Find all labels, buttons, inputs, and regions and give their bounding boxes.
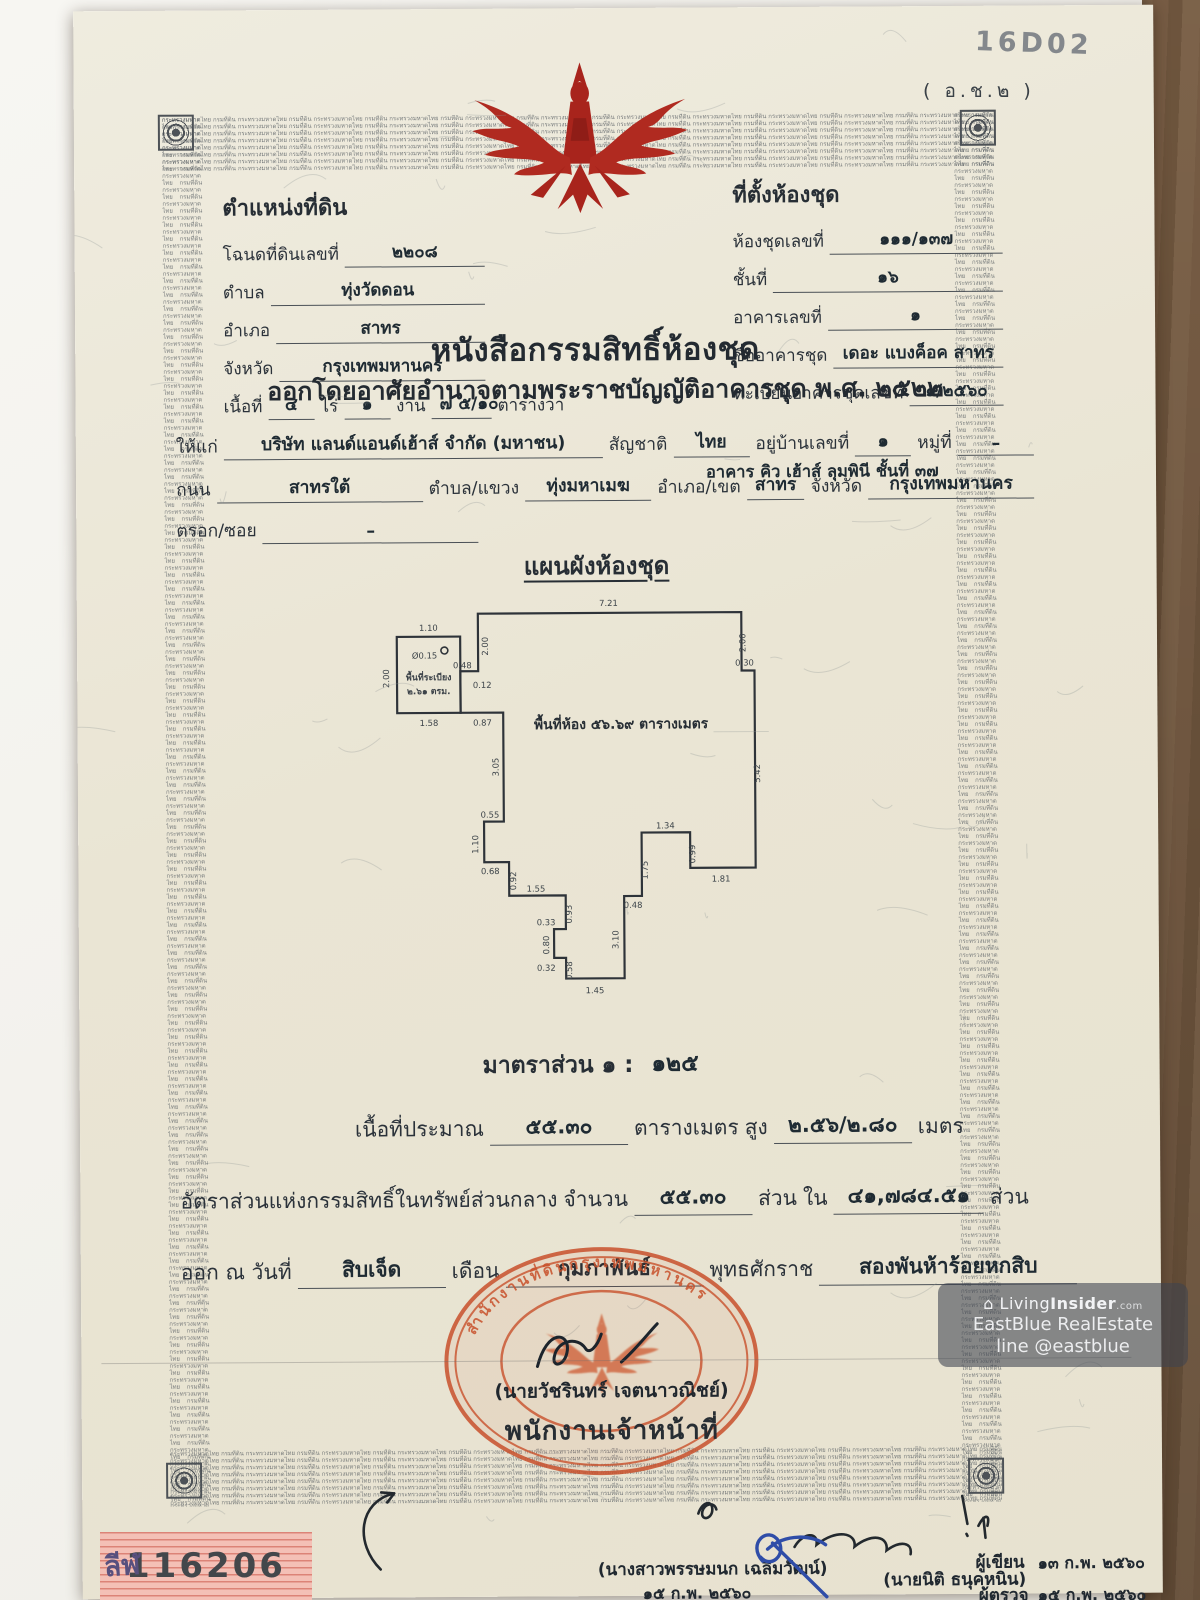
livinginsider-logo-icon: ⌂ xyxy=(983,1294,994,1313)
dimension-label: 1.75 xyxy=(640,861,650,880)
dimension-label: 5.42 xyxy=(752,764,762,783)
field-value: บริษัท แลนด์แอนด์เฮ้าส์ จำกัด (มหาชน) xyxy=(224,428,603,460)
field-label: ส่วน xyxy=(990,1180,1029,1213)
officer-name: (นายวัชรินทร์ เจตนาวณิชย์) xyxy=(412,1375,812,1407)
dimension-label: 0.48 xyxy=(453,660,472,670)
handwritten-initial: ลีฬ xyxy=(103,1543,142,1589)
dimension-label: 0.32 xyxy=(537,963,556,973)
scale-label: มาตราส่วน ๑ : xyxy=(483,1047,634,1084)
floor-plan-title: แผนผังห้องชุด xyxy=(76,543,1116,588)
field-value: ๑๖ xyxy=(773,263,1003,293)
officer-signature xyxy=(529,1319,709,1378)
dimension-label: 2.00 xyxy=(381,669,391,688)
field-value: ไทย xyxy=(673,427,749,457)
field-value: ทุ่งวัดดอน xyxy=(271,276,485,306)
corner-rosette-icon xyxy=(960,110,996,146)
dimension-label: Ø0.15 xyxy=(412,650,437,660)
watermark-brand: ⌂ LivingInsider.com xyxy=(983,1294,1142,1313)
handwritten-code: 16D02 xyxy=(974,26,1093,61)
field-value: ๒๒๐๘ xyxy=(345,238,485,268)
dimension-label: 0.48 xyxy=(624,900,643,910)
form-row: อัตราส่วนแห่งกรรมสิทธิ์ในทรัพย์ส่วนกลางจ… xyxy=(180,1178,1060,1218)
field-label: หมู่ที่ xyxy=(917,428,952,456)
form-code: ( อ.ช.๒ ) xyxy=(923,76,1035,106)
field-label: ส่วน xyxy=(758,1182,797,1215)
deed-title: หนังสือกรรมสิทธิ์ห้องชุด xyxy=(375,323,815,376)
field-value: เดอะ แบงค็อค สาทร xyxy=(833,339,1003,369)
registration-number: 116206 xyxy=(126,1546,286,1586)
dimension-label: 0.55 xyxy=(481,810,500,820)
dimension-label: 1.55 xyxy=(527,884,546,894)
field-value: ทุ่งมหาเมฆ xyxy=(525,471,651,502)
dimension-label: 0.58 xyxy=(564,961,574,980)
field-value: ๔๑,๗๘๔.๕๑ xyxy=(833,1179,984,1215)
field-label: สัญชาติ xyxy=(609,430,668,458)
dimension-label: 1.34 xyxy=(656,820,675,830)
form-row: ตำบลทุ่งวัดดอน xyxy=(223,276,485,307)
corner-rosette-icon xyxy=(158,115,194,151)
balcony-area: ๒.๖๑ ตรม. xyxy=(407,687,451,697)
field-label: จำนวน xyxy=(563,1183,628,1216)
form-row: ให้แก่บริษัท แลนด์แอนด์เฮ้าส์ จำกัด (มหา… xyxy=(176,425,1034,460)
field-value: – xyxy=(263,521,479,544)
dimension-label: 0.93 xyxy=(564,905,574,924)
form-row: ตรอก/ซอย– xyxy=(176,511,1034,544)
field-label: ใน xyxy=(803,1182,828,1215)
field-label: โฉนดที่ดินเลขที่ xyxy=(223,241,339,269)
field-label: เนื้อที่ประมาณ xyxy=(355,1113,484,1147)
field-value: สองพันห้าร้อยหกสิบ xyxy=(819,1249,1077,1286)
field-value: สาทรใต้ xyxy=(217,472,423,503)
dimension-label: 3.05 xyxy=(491,758,501,777)
field-label: ให้แก่ xyxy=(176,432,218,460)
handwritten-marks xyxy=(262,1467,1083,1600)
field-label: ตารางเมตร xyxy=(634,1111,739,1145)
dimension-label: 1.58 xyxy=(420,718,439,728)
dimension-label: 1.10 xyxy=(470,835,480,854)
dimension-label: 3.10 xyxy=(610,930,620,949)
field-value: ๕๕.๓๐ xyxy=(490,1110,628,1146)
field-label: ตรอก/ซอย xyxy=(176,516,257,544)
dimension-label: 7.21 xyxy=(599,598,618,608)
field-value: ๑ xyxy=(855,426,911,456)
form-row: ชั้นที่๑๖ xyxy=(733,263,1003,294)
dimension-label: 2.00 xyxy=(480,637,490,656)
grantee-address-line2: อาคาร คิว เฮ้าส์ ลุมพินี ชั้นที่ ๓๗ xyxy=(706,458,939,485)
dimension-label: 1.81 xyxy=(712,874,731,884)
form-row: โฉนดที่ดินเลขที่๒๒๐๘ xyxy=(223,238,485,269)
scale-value: ๑๒๕ xyxy=(643,1045,706,1082)
field-label: ถนน xyxy=(176,475,211,503)
field-value: ๒.๕๖/๒.๘๐ xyxy=(774,1108,912,1144)
field-label: ตำบล xyxy=(223,279,265,306)
dimension-label: 0.68 xyxy=(481,866,500,876)
room-area-label: พื้นที่ห้อง ๕๖.๖๙ ตารางเมตร xyxy=(534,713,709,733)
field-label: ตำบล/แขวง xyxy=(429,474,520,503)
deed-subtitle: ออกโดยอาศัยอำนาจตามพระราชบัญญัติอาคารชุด… xyxy=(185,368,1025,413)
dimension-label: 1.10 xyxy=(419,623,438,633)
brand-prefix: Living xyxy=(1000,1294,1051,1313)
column-circle xyxy=(441,647,448,654)
watermark-line2: EastBlue RealEstate xyxy=(973,1314,1153,1335)
land-position-title: ตำแหน่งที่ดิน xyxy=(222,189,484,226)
officer-role: พนักงานเจ้าหน้าที่ xyxy=(412,1409,812,1452)
brand-tld: .com xyxy=(1116,1301,1143,1312)
dimension-label: 0.87 xyxy=(473,718,492,728)
dimension-label: 0.80 xyxy=(541,936,551,955)
field-label: ชั้นที่ xyxy=(733,266,768,293)
dimension-label: 0.33 xyxy=(537,917,556,927)
field-label: ออก ณ วันที่ xyxy=(181,1256,292,1290)
form-row: ห้องชุดเลขที่๑๑๑/๑๓๗ xyxy=(732,225,1002,256)
dimension-label: 0.92 xyxy=(508,871,518,890)
field-value: สิบเจ็ด xyxy=(298,1253,446,1289)
floor-plan-drawing: พื้นที่ระเบียง ๒.๖๑ ตรม. พื้นที่ห้อง ๕๖.… xyxy=(373,589,786,1011)
field-value: ๕๕.๓๐ xyxy=(634,1180,752,1216)
dimension-label: 2.00 xyxy=(737,633,747,652)
field-label: อำเภอ xyxy=(223,317,270,344)
field-label: อัตราส่วนแห่งกรรมสิทธิ์ในทรัพย์ส่วนกลาง xyxy=(180,1183,557,1218)
field-value: ๑ xyxy=(828,301,1003,331)
dimension-label: 1.45 xyxy=(586,985,605,995)
dimension-labels: 7.211.10Ø0.152.002.000.480.121.580.873.0… xyxy=(381,597,764,997)
corner-rosette-icon xyxy=(166,1463,202,1499)
condo-location-title: ที่ตั้งห้องชุด xyxy=(732,176,1002,213)
garuda-emblem-icon xyxy=(465,58,694,247)
field-value: ๑๑๑/๑๓๗ xyxy=(830,225,1003,255)
field-label: ห้องชุดเลขที่ xyxy=(732,228,824,256)
dimension-label: 0.99 xyxy=(687,845,697,864)
grantee-fields: ให้แก่บริษัท แลนด์แอนด์เฮ้าส์ จำกัด (มหา… xyxy=(176,425,1035,544)
balcony-label: พื้นที่ระเบียง xyxy=(406,670,452,683)
watermark-line3: line @eastblue xyxy=(996,1336,1130,1357)
dimension-label: 0.12 xyxy=(473,680,492,690)
brand-bold: Insider xyxy=(1050,1294,1116,1313)
field-value: – xyxy=(958,433,1034,455)
field-label: สูง xyxy=(745,1111,768,1144)
field-label: เมตร xyxy=(918,1110,964,1143)
field-label: อยู่บ้านเลขที่ xyxy=(755,429,849,458)
photo-of-condo-title-deed: กระทรวงมหาดไทย กรมที่ดิน กระทรวงมหาดไทย … xyxy=(0,0,1200,1600)
form-row: เนื้อที่ประมาณ๕๕.๓๐ตารางเมตรสูง๒.๕๖/๒.๘๐… xyxy=(355,1107,1060,1146)
scale-line: มาตราส่วน ๑ : ๑๒๕ xyxy=(80,1043,1110,1086)
watermark-overlay: ⌂ LivingInsider.com EastBlue RealEstate … xyxy=(938,1283,1188,1367)
unit-outline xyxy=(460,612,756,979)
dimension-label: 0.30 xyxy=(735,657,754,667)
grantee-section: ให้แก่บริษัท แลนด์แอนด์เฮ้าส์ จำกัด (มหา… xyxy=(176,425,1035,557)
